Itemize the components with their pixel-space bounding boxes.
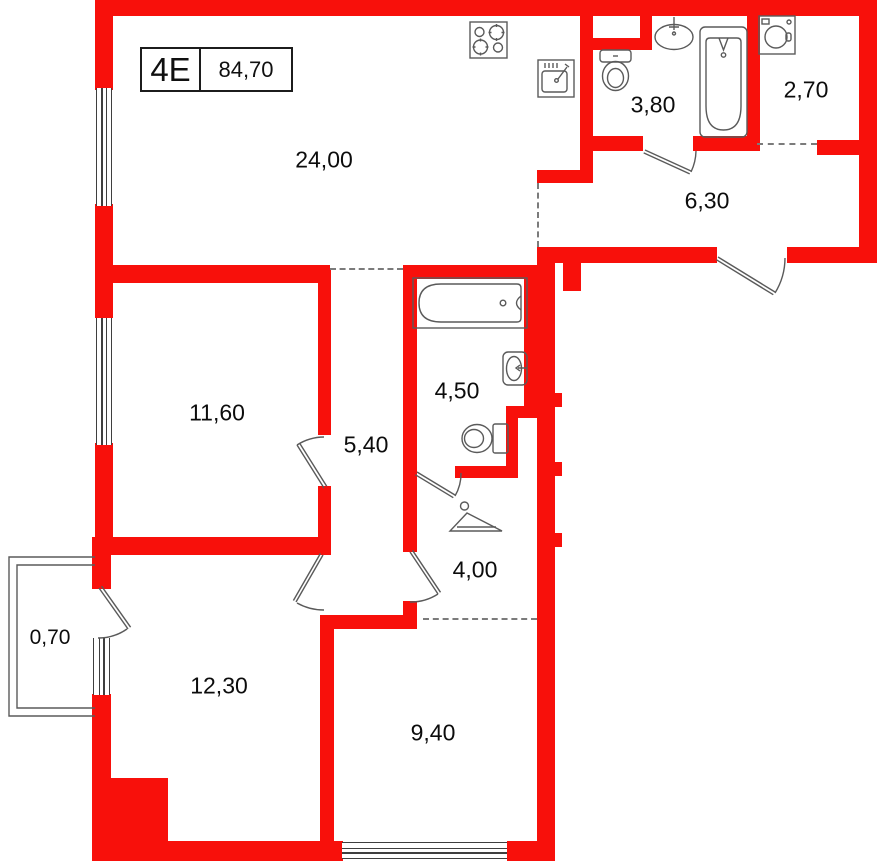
wall-bathroom-niche-h <box>506 406 537 418</box>
wall-laundry-bottom <box>817 140 877 155</box>
door-swing-bedroom2 <box>293 554 324 611</box>
wall-kitchen-hall-stub <box>537 170 587 183</box>
wall-bathroom-right <box>524 265 537 412</box>
room-area-wc: 3,80 <box>631 92 676 119</box>
wall-exterior-left-3 <box>95 443 113 539</box>
wall-tie-nub-1 <box>555 393 562 407</box>
wall-bedroom1-corridor-upper <box>318 268 331 435</box>
window-bedroom2 <box>93 638 110 695</box>
wall-exterior-right <box>859 0 877 263</box>
wall-exterior-left-1 <box>95 0 113 90</box>
wall-kitchen-bedroom1 <box>95 265 330 283</box>
room-area-room940: 9,40 <box>411 720 456 747</box>
room-area-bedroom1: 11,60 <box>189 400 245 427</box>
door-swing-balcony <box>98 586 131 638</box>
wall-wc-bottom-left <box>580 136 643 151</box>
clothes-hanger-icon <box>450 502 502 531</box>
wall-exterior-bottom-right <box>507 841 555 861</box>
wall-shaft-right <box>640 13 652 50</box>
door-swing-hall <box>410 550 441 602</box>
room-area-bathroom: 4,50 <box>435 378 480 405</box>
wall-neighbor-stub <box>563 263 581 291</box>
room-area-laundry: 2,70 <box>784 77 829 104</box>
room-area-bedroom2: 12,30 <box>190 673 248 700</box>
wall-vestibule-right-stub <box>403 601 417 629</box>
door-swing-bedroom1 <box>297 437 327 488</box>
floor-plan: 4E 84,70 24,00 3,80 2,70 6,30 11,60 5,40… <box>0 0 877 861</box>
wall-main-right <box>537 247 555 861</box>
wall-exterior-bottom-left <box>110 841 343 861</box>
window-kitchen <box>96 88 112 206</box>
opening-kitchen-hallway <box>537 183 539 247</box>
kitchen-sink-icon <box>538 60 574 97</box>
opening-hall-room940 <box>423 618 537 620</box>
wall-bedroom2-room940 <box>320 615 334 843</box>
stove-icon <box>470 22 507 58</box>
toilet-icon-wc <box>600 50 631 91</box>
wash-basin-icon-wc <box>655 17 693 50</box>
window-room940 <box>342 842 507 859</box>
room-area-hall: 4,00 <box>453 557 498 584</box>
wall-wc-laundry <box>747 13 760 151</box>
door-swing-entrance <box>716 257 785 295</box>
opening-laundry-hallway <box>757 143 817 145</box>
bathtub-icon-bathroom <box>413 278 527 328</box>
room-area-corridor: 5,40 <box>344 432 389 459</box>
door-swing-wc <box>644 150 696 174</box>
total-area-label: 84,70 <box>201 49 291 90</box>
unit-label: 4E <box>142 49 201 90</box>
wall-tie-nub-3 <box>555 533 562 547</box>
room-area-hallway: 6,30 <box>685 188 730 215</box>
wall-corridor-bathroom <box>403 265 417 552</box>
bathtub-icon-wc <box>700 27 747 137</box>
title-block: 4E 84,70 <box>140 47 293 92</box>
wall-bedroom1-corridor-lower <box>318 486 331 555</box>
toilet-icon-bathroom <box>462 424 508 453</box>
wall-exterior-left-2 <box>95 204 113 318</box>
opening-kitchen-corridor <box>330 268 403 270</box>
wall-bathroom-top <box>403 265 537 279</box>
washing-machine-icon <box>759 16 795 54</box>
window-bedroom1 <box>96 318 112 445</box>
wall-bedroom1-bedroom2 <box>95 537 330 555</box>
wall-exterior-left-5 <box>92 694 111 861</box>
room-area-balcony: 0,70 <box>30 626 71 650</box>
wall-bathroom-bottom <box>455 466 517 478</box>
room-area-kitchen-living: 24,00 <box>295 147 353 174</box>
wall-hallway-bottom-left <box>537 247 717 263</box>
wall-tie-nub-2 <box>555 462 562 476</box>
